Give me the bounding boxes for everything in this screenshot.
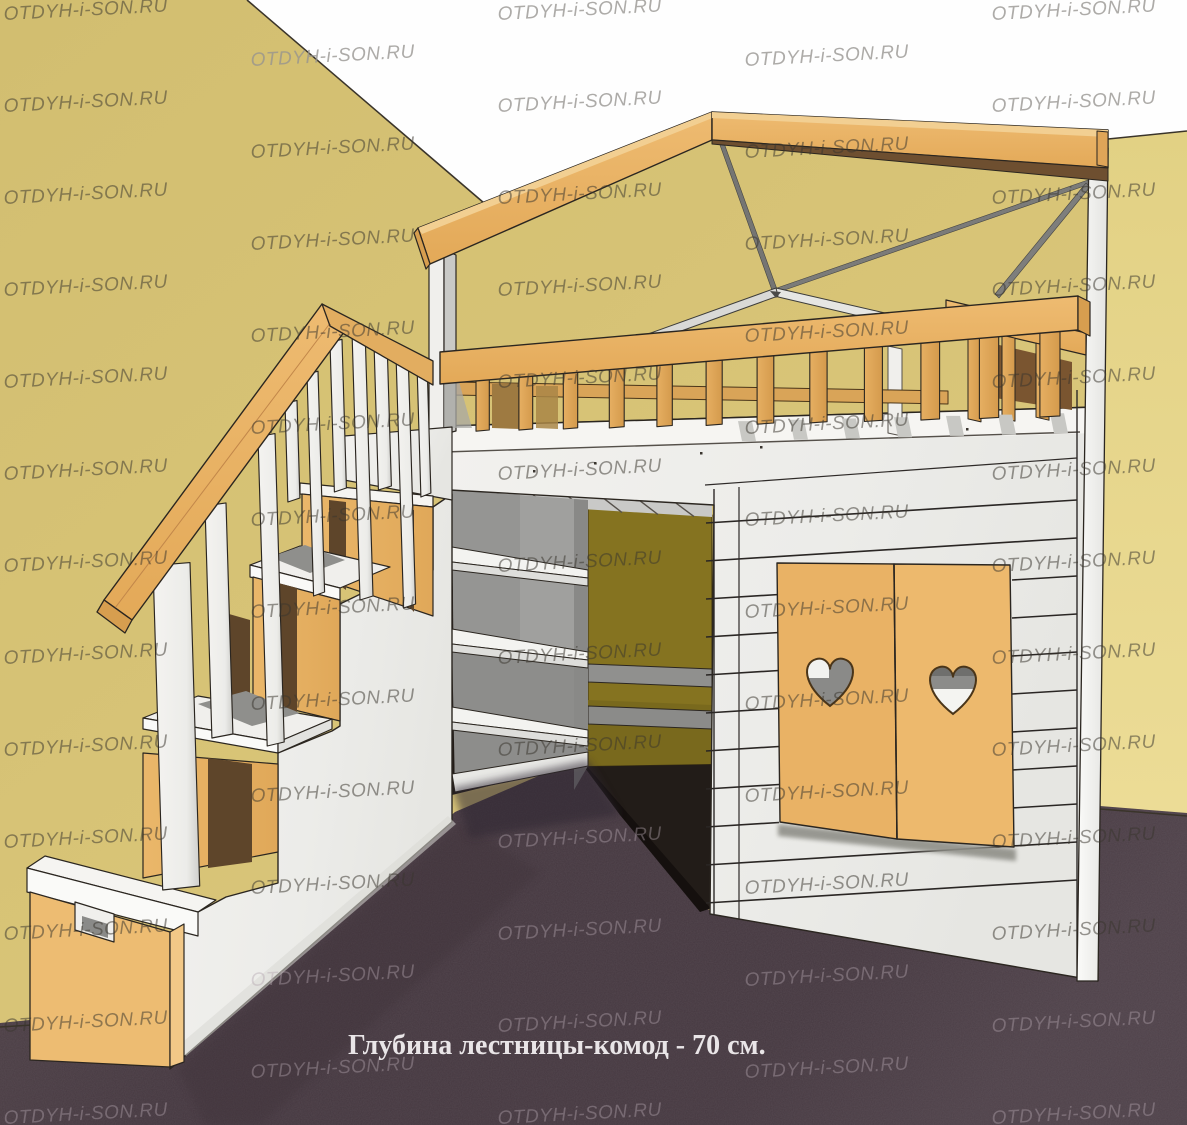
svg-text:Глубина лестницы-комод - 70 см: Глубина лестницы-комод - 70 см. bbox=[348, 1030, 766, 1061]
